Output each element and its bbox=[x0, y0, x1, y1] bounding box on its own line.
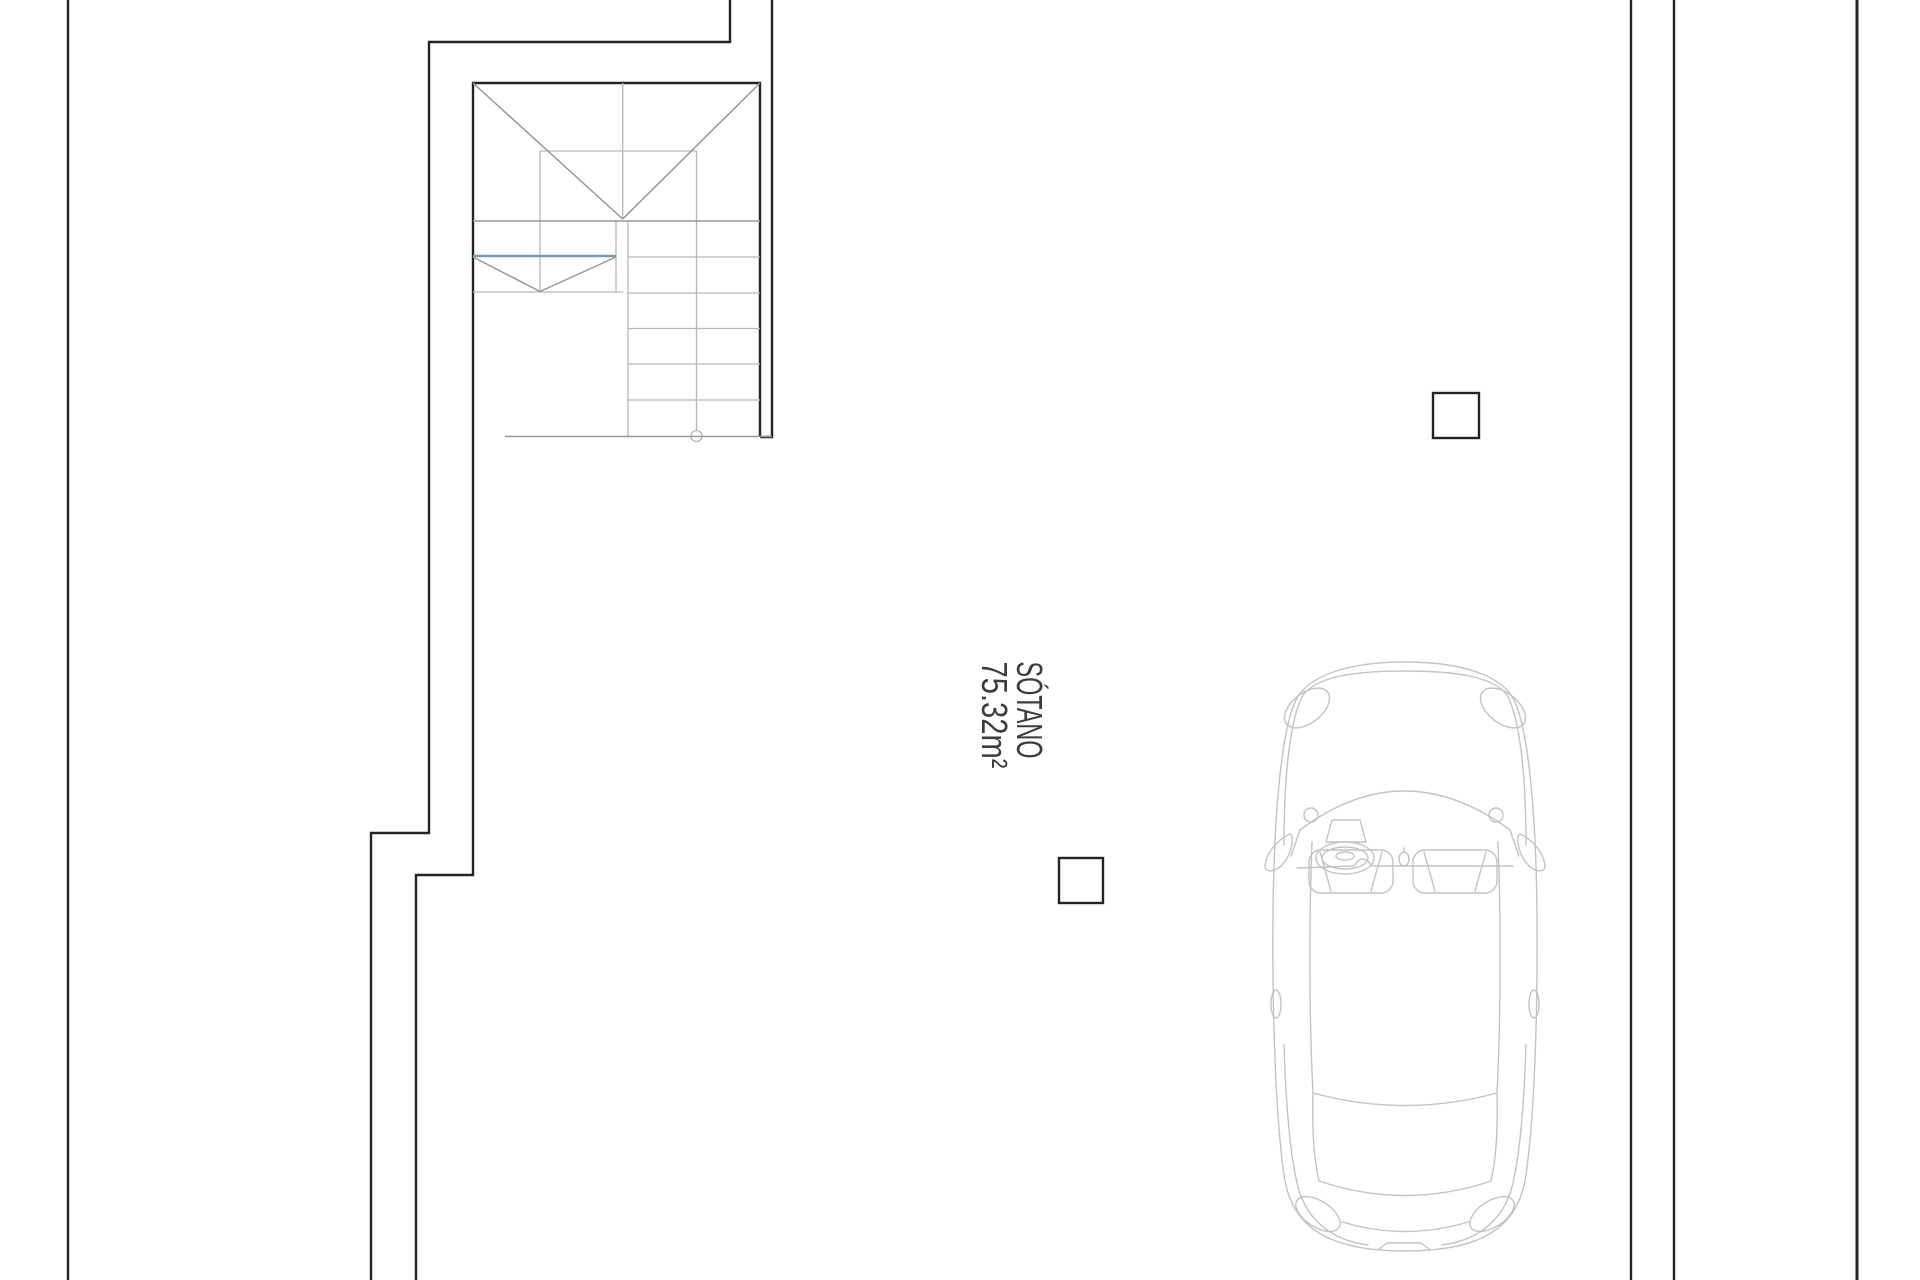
stair-v-diagonal-right bbox=[540, 257, 616, 292]
car-inner-rear-right bbox=[1442, 1045, 1526, 1245]
stair-v-diagonal-left bbox=[473, 257, 540, 292]
car-rear-window-arc bbox=[1313, 1093, 1497, 1106]
car-rear-lower-arc bbox=[1342, 1222, 1468, 1232]
car-top-view bbox=[1265, 662, 1545, 1251]
stair-right-wall bbox=[760, 0, 772, 437]
columns bbox=[1059, 393, 1479, 903]
car-headlight-left bbox=[1277, 680, 1336, 736]
car-inner-rear-left bbox=[1284, 1045, 1368, 1245]
car-steering-wheel-hub bbox=[1336, 852, 1354, 860]
car-gear-knob bbox=[1399, 852, 1409, 866]
car-c-pillar-right bbox=[1491, 1093, 1497, 1181]
stair-treads bbox=[473, 83, 760, 442]
column-pillar-top-right bbox=[1433, 393, 1479, 438]
walls bbox=[68, 0, 1857, 1280]
car-door-handle-right bbox=[1529, 990, 1539, 1018]
car-body-outline bbox=[1273, 662, 1537, 1251]
car-roof-edge-left bbox=[1310, 842, 1313, 1093]
staircase bbox=[473, 83, 772, 442]
car-rear-bumper-notch bbox=[1379, 1243, 1429, 1249]
car-c-pillar-left bbox=[1313, 1093, 1319, 1181]
car-headlight-right bbox=[1473, 680, 1532, 736]
car-mirror-left bbox=[1265, 834, 1292, 871]
car-mirror-right bbox=[1518, 834, 1545, 871]
car-rear-deck-arc bbox=[1319, 1181, 1491, 1196]
wall-top-notch bbox=[371, 0, 730, 1280]
column-pillar-center bbox=[1059, 858, 1103, 903]
room-area-label: 75.32m² bbox=[974, 662, 1015, 769]
car-dash-vent-left bbox=[1304, 808, 1318, 822]
car-steering-column bbox=[1326, 820, 1366, 842]
car-seat-right-bolster bbox=[1424, 852, 1486, 891]
car-door-handle-left bbox=[1271, 990, 1281, 1018]
room-label: SÓTANO 75.32m² bbox=[974, 661, 1050, 768]
stair-enclosure-wall bbox=[416, 83, 760, 1280]
floor-plan-canvas: SÓTANO 75.32m² bbox=[0, 0, 1920, 1280]
